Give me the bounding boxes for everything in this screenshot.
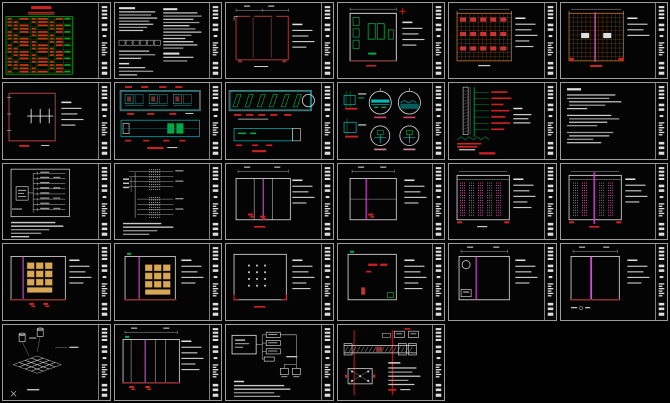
sheet-r2c6-specification-notes[interactable] bbox=[560, 82, 669, 159]
sheet-drawing bbox=[338, 244, 433, 319]
sheet-drawing bbox=[449, 244, 544, 319]
title-block-strip bbox=[209, 164, 221, 239]
sheet-drawing bbox=[226, 244, 321, 319]
title-block-strip bbox=[544, 3, 556, 78]
title-block-strip bbox=[209, 3, 221, 78]
sheet-drawing bbox=[3, 325, 98, 400]
sheet-drawing bbox=[338, 83, 433, 158]
sheet-drawing bbox=[115, 244, 210, 319]
title-block-strip bbox=[655, 244, 667, 319]
sheet-drawing bbox=[338, 3, 433, 78]
title-block-strip bbox=[432, 244, 444, 319]
sheet-r1c1-drawing-list[interactable] bbox=[2, 2, 111, 79]
sheet-r4c3-elevation-dot-grid[interactable] bbox=[225, 243, 334, 320]
sheet-r3c1-system-diagram[interactable] bbox=[2, 163, 111, 240]
sheet-r5c3-wiring-flow-diagram[interactable] bbox=[225, 324, 334, 401]
sheet-drawing bbox=[115, 164, 210, 239]
title-block-strip bbox=[98, 3, 110, 78]
sheet-r5c2-elevation-verticals[interactable] bbox=[114, 324, 223, 401]
sheet-r1c5-ceiling-grid-a[interactable] bbox=[448, 2, 557, 79]
sheet-drawing bbox=[449, 3, 544, 78]
sheet-r2c1-room-plan-section-symbol[interactable] bbox=[2, 82, 111, 159]
sheet-drawing bbox=[226, 3, 321, 78]
title-block-strip bbox=[321, 164, 333, 239]
title-block-strip bbox=[98, 83, 110, 158]
title-block-strip bbox=[98, 164, 110, 239]
sheet-drawing bbox=[115, 325, 210, 400]
title-block-strip bbox=[544, 244, 556, 319]
title-block-strip bbox=[655, 3, 667, 78]
title-block-strip bbox=[209, 325, 221, 400]
sheet-drawing bbox=[3, 244, 98, 319]
empty-slot bbox=[560, 324, 669, 401]
sheet-drawing bbox=[3, 3, 98, 78]
title-block-strip bbox=[544, 164, 556, 239]
title-block-strip bbox=[98, 244, 110, 319]
sheet-r1c6-ceiling-grid-b[interactable] bbox=[560, 2, 669, 79]
title-block-strip bbox=[321, 325, 333, 400]
sheet-drawing bbox=[561, 3, 656, 78]
sheet-r2c2-elevation-strips[interactable] bbox=[114, 82, 223, 159]
sheet-r2c5-wall-section[interactable] bbox=[448, 82, 557, 159]
sheet-drawing bbox=[115, 3, 210, 78]
title-block-strip bbox=[432, 83, 444, 158]
sheet-r3c3-elevation-three-panel[interactable] bbox=[225, 163, 334, 240]
title-block-strip bbox=[321, 3, 333, 78]
sheet-r2c3-glazing-elevation[interactable] bbox=[225, 82, 334, 159]
title-block-strip bbox=[655, 83, 667, 158]
sheet-drawing bbox=[226, 325, 321, 400]
sheet-r5c1-floor-tile-axonometric[interactable] bbox=[2, 324, 111, 401]
sheet-drawing bbox=[338, 164, 433, 239]
sheet-r3c2-column-detail[interactable] bbox=[114, 163, 223, 240]
empty-slot bbox=[448, 324, 557, 401]
title-block-strip bbox=[209, 83, 221, 158]
sheet-drawing bbox=[3, 164, 98, 239]
title-block-strip bbox=[432, 3, 444, 78]
sheet-r4c6-elevation-magenta-line[interactable] bbox=[560, 243, 669, 320]
sheet-drawing bbox=[115, 83, 210, 158]
sheet-r1c4-room-plan[interactable] bbox=[337, 2, 446, 79]
sheet-drawing bbox=[561, 164, 656, 239]
sheet-r4c4-elevation-red-marks[interactable] bbox=[337, 243, 446, 320]
sheet-drawing bbox=[3, 83, 98, 158]
sheet-r4c5-elevation-circle-detail[interactable] bbox=[448, 243, 557, 320]
sheet-drawing bbox=[226, 164, 321, 239]
title-block-strip bbox=[544, 83, 556, 158]
title-block-strip bbox=[432, 164, 444, 239]
sheet-r3c5-ceiling-plan-pink-a[interactable] bbox=[448, 163, 557, 240]
sheet-r4c1-elevation-cabinets-left[interactable] bbox=[2, 243, 111, 320]
sheet-r3c4-elevation-plain[interactable] bbox=[337, 163, 446, 240]
sheet-drawing bbox=[561, 244, 656, 319]
sheet-drawing bbox=[561, 83, 656, 158]
title-block-strip bbox=[432, 325, 444, 400]
title-block-strip bbox=[321, 244, 333, 319]
title-block-strip bbox=[209, 244, 221, 319]
sheet-r4c2-elevation-cabinets-right[interactable] bbox=[114, 243, 223, 320]
sheet-r1c3-wardrobe-plan[interactable] bbox=[225, 2, 334, 79]
sheet-r5c4-mounting-detail[interactable] bbox=[337, 324, 446, 401]
sheet-drawing bbox=[338, 325, 433, 400]
title-block-strip bbox=[655, 164, 667, 239]
sheet-drawing bbox=[449, 83, 544, 158]
sheet-drawing bbox=[226, 83, 321, 158]
sheet-r1c2-general-notes[interactable] bbox=[114, 2, 223, 79]
sheet-grid bbox=[0, 0, 670, 403]
sheet-r3c6-ceiling-plan-pink-b[interactable] bbox=[560, 163, 669, 240]
sheet-drawing bbox=[449, 164, 544, 239]
title-block-strip bbox=[321, 83, 333, 158]
title-block-strip bbox=[98, 325, 110, 400]
sheet-r2c4-detail-callouts[interactable] bbox=[337, 82, 446, 159]
